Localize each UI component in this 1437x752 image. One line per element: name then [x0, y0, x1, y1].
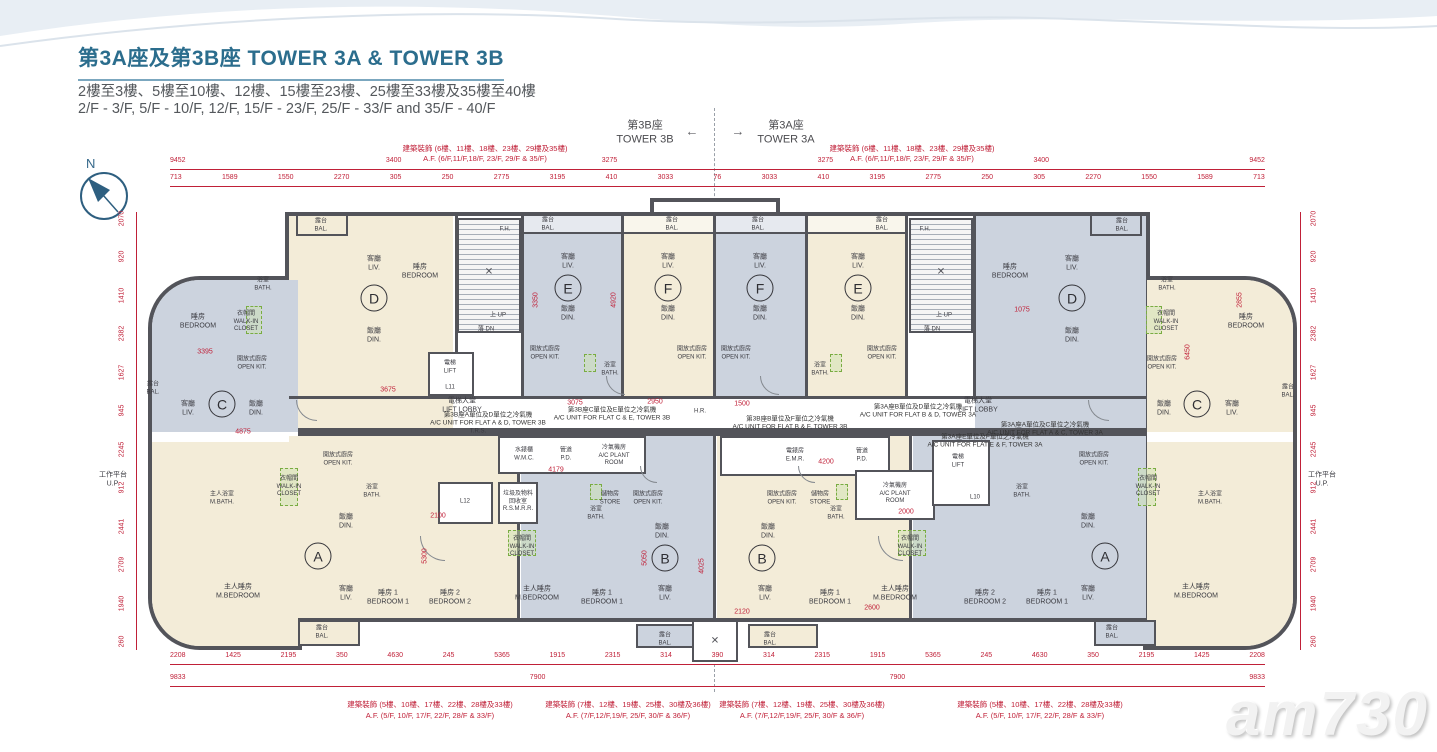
dim-inner: 6450	[1185, 344, 1192, 360]
room-balcony: 露台 BAL.	[665, 218, 678, 233]
unit-circle-a-left: A	[305, 543, 332, 570]
room-bath: 浴室 BATH.	[363, 485, 380, 500]
dimension-value: 912	[1311, 482, 1318, 494]
dimension-value: 9452	[170, 157, 186, 164]
unit-circle-c-left: C	[209, 391, 236, 418]
dimension-value: 1940	[118, 595, 125, 611]
hose-reel-label: H.R.	[694, 408, 706, 416]
room-balcony: 露台 BAL.	[875, 218, 888, 233]
ac-note-ac3a: 第3A座A單位及C單位之冷氣機 A/C UNIT FOR FLAT A & C,…	[987, 422, 1103, 439]
dim-chain-top-totals: 945234003275327534009452	[170, 157, 1265, 164]
dimension-value: 305	[1033, 174, 1045, 181]
wall	[973, 216, 976, 396]
unit-circle-f-left: F	[655, 275, 682, 302]
unit-circle-b-right: B	[749, 545, 776, 572]
room-open-kitchen: 開放式廚房 OPEN KIT.	[1147, 357, 1177, 372]
dimension-value: 2070	[118, 211, 125, 227]
dimension-value: 4630	[1032, 652, 1048, 659]
dimension-value: 260	[1311, 636, 1318, 648]
room-living: 客廳 LIV.	[753, 253, 767, 271]
dimension-value: 3400	[386, 157, 402, 164]
room-master-bedroom: 主人睡房 M.BEDROOM	[1174, 583, 1218, 601]
ac-plant-label: 冷氣機房 A/C PLANT ROOM	[879, 483, 910, 506]
room-living: 客廳 LIV.	[339, 585, 353, 603]
balcony-e-left	[523, 216, 621, 234]
stair-cross-mark: ✕	[711, 636, 719, 647]
dim-line	[170, 169, 1265, 170]
dimension-value: 2382	[1310, 326, 1317, 342]
dimension-value: 260	[119, 636, 126, 648]
room-walkin: 衣帽間 WALK-IN CLOSET	[234, 311, 259, 334]
room-walkin: 衣帽間 WALK-IN CLOSET	[1136, 476, 1161, 499]
dim-chain-bottom-totals: 9833790079009833	[170, 674, 1265, 681]
room-bedroom: 睡房 BEDROOM	[992, 263, 1028, 281]
ac-note-bf3b: 第3B座B單位及F單位之冷氣機 A/C UNIT FOR FLAT B & F,…	[733, 416, 848, 433]
dimension-value: 1589	[222, 174, 238, 181]
dimension-value: 76	[714, 174, 722, 181]
dim-chain-right: 2070920141023821627945224591224412709194…	[1306, 215, 1322, 645]
subtitle-english: 2/F - 3/F, 5/F - 10/F, 12/F, 15/F - 23/F…	[78, 101, 495, 117]
room-dining: 飯廳 DIN.	[1065, 327, 1079, 345]
closet-highlight	[830, 354, 842, 372]
dimension-value: 2441	[118, 518, 125, 534]
room-balcony: 露台 BAL.	[1105, 626, 1118, 641]
dimension-value: 314	[763, 652, 775, 659]
dimension-value: 945	[119, 405, 126, 417]
ac-note-bd3a: 第3A座B單位及D單位之冷氣機 A/C UNIT FOR FLAT B & D,…	[860, 404, 976, 421]
lift-label: 電梯 LIFT	[444, 361, 456, 376]
room-open-kitchen: 開放式廚房 OPEN KIT.	[721, 347, 751, 362]
pipe-duct-label: 管道 P.D.	[856, 449, 868, 464]
pipe-duct-label: 管道 P.D.	[560, 448, 572, 463]
dimension-value: 2245	[1310, 441, 1317, 457]
room-living: 客廳 LIV.	[1065, 255, 1079, 273]
dimension-value: 1915	[550, 652, 566, 659]
dimension-value: 1425	[1194, 652, 1210, 659]
dimension-value: 2382	[118, 326, 125, 342]
balcony-a-left	[298, 620, 360, 646]
dim-inner: 4200	[818, 459, 834, 466]
room-dining: 飯廳 DIN.	[851, 305, 865, 323]
dimension-value: 920	[119, 251, 126, 263]
room-living: 客廳 LIV.	[561, 253, 575, 271]
arrow-left-icon: ←	[686, 124, 699, 139]
lift-number-l10: L10	[970, 494, 980, 502]
dimension-value: 2775	[925, 174, 941, 181]
dim-chain-bottom-detail: 2208142521953504630245536519152315314390…	[170, 652, 1265, 659]
dimension-value: 9833	[170, 674, 186, 681]
dimension-value: 3275	[818, 157, 834, 164]
stair-up-label: 上 UP	[936, 312, 952, 320]
dimension-value: 2208	[170, 652, 186, 659]
room-walkin: 衣帽間 WALK-IN CLOSET	[898, 536, 923, 559]
room-balcony: 露台 BAL.	[315, 626, 328, 641]
wall	[521, 216, 524, 396]
am730-watermark: am730	[1226, 679, 1429, 750]
room-bedroom1: 睡房 1 BEDROOM 1	[809, 589, 851, 607]
right-wing-mbedroom-area	[1147, 442, 1293, 646]
unit-circle-b-left: B	[652, 545, 679, 572]
lift-number-l11: L11	[445, 384, 455, 392]
dim-line	[170, 686, 1265, 687]
stair-cross-right: ✕	[937, 267, 945, 278]
dim-inner: 2600	[864, 605, 880, 612]
dim-chain-left: 2070920141023821627945224591224412709194…	[114, 215, 130, 645]
dim-inner: 2000	[898, 509, 914, 516]
room-living: 客廳 LIV.	[181, 400, 195, 418]
dimension-value: 1410	[118, 288, 125, 304]
dimension-value: 245	[443, 652, 455, 659]
dimension-value: 1940	[1310, 595, 1317, 611]
af-note-bottom-2: 建築裝飾 (7樓、12樓、19樓、25樓、30樓及36樓) A.F. (7/F,…	[545, 700, 710, 721]
dimension-value: 5365	[494, 652, 510, 659]
room-balcony: 露台 BAL.	[1281, 385, 1294, 400]
balcony-a-right	[1094, 620, 1156, 646]
dimension-value: 920	[1311, 251, 1318, 263]
dimension-value: 2245	[118, 441, 125, 457]
room-balcony: 露台 BAL.	[541, 218, 554, 233]
room-master-bedroom: 主人睡房 M.BEDROOM	[515, 585, 559, 603]
dimension-value: 2208	[1249, 652, 1265, 659]
left-wing-mbedroom-area	[152, 442, 298, 646]
emr-label: 電錶房 E.M.R.	[786, 449, 804, 464]
room-living: 客廳 LIV.	[367, 255, 381, 273]
dimension-value: 1410	[1310, 288, 1317, 304]
dimension-value: 2775	[494, 174, 510, 181]
dim-inner: 4025	[699, 558, 706, 574]
room-bedroom2: 睡房 2 BEDROOM 2	[964, 589, 1006, 607]
room-master-bath: 主人浴室 M.BATH.	[1198, 492, 1222, 507]
fire-hydrant-label: F.H.	[920, 226, 931, 234]
room-bedroom1: 睡房 1 BEDROOM 1	[1026, 589, 1068, 607]
room-master-bath: 主人浴室 M.BATH.	[210, 492, 234, 507]
dimension-value: 250	[442, 174, 454, 181]
unit-circle-e-left: E	[555, 275, 582, 302]
dimension-value: 3195	[550, 174, 566, 181]
dim-inner: 5050	[642, 550, 649, 566]
room-bath: 浴室 BATH.	[254, 278, 271, 293]
room-dining: 飯廳 DIN.	[761, 523, 775, 541]
dimension-value: 5365	[925, 652, 941, 659]
room-master-bedroom: 主人睡房 M.BEDROOM	[216, 583, 260, 601]
room-living: 客廳 LIV.	[658, 585, 672, 603]
dim-inner: 4920	[611, 292, 618, 308]
dimension-value: 3275	[602, 157, 618, 164]
ac-note-ad3b: 第3B座A單位及D單位之冷氣機 A/C UNIT FOR FLAT A & D,…	[430, 412, 546, 429]
dim-inner: 2120	[734, 609, 750, 616]
wall	[621, 216, 624, 396]
ac-plant-label: 冷氣機房 A/C PLANT ROOM	[598, 445, 629, 468]
room-living: 客廳 LIV.	[1081, 585, 1095, 603]
dimension-value: 2270	[334, 174, 350, 181]
room-bedroom: 睡房 BEDROOM	[1228, 313, 1264, 331]
dimension-value: 2441	[1310, 518, 1317, 534]
dimension-value: 7900	[890, 674, 906, 681]
dim-line	[136, 212, 137, 650]
af-note-bottom-3: 建築裝飾 (7樓、12樓、19樓、25樓、30樓及36樓) A.F. (7/F,…	[719, 700, 884, 721]
dim-line	[170, 186, 1265, 187]
wall	[805, 216, 808, 396]
balcony-e-right	[807, 216, 905, 234]
dimension-value: 390	[712, 652, 724, 659]
room-bath: 浴室 BATH.	[811, 363, 828, 378]
dimension-value: 7900	[530, 674, 546, 681]
room-open-kitchen: 開放式廚房 OPEN KIT.	[1079, 453, 1109, 468]
dim-inner: 2100	[430, 513, 446, 520]
room-balcony: 露台 BAL.	[763, 633, 776, 648]
room-dining: 飯廳 DIN.	[1081, 513, 1095, 531]
room-walkin: 衣帽間 WALK-IN CLOSET	[1154, 311, 1179, 334]
room-walkin: 衣帽間 WALK-IN CLOSET	[510, 536, 535, 559]
stair-down-label: 落 DN	[478, 326, 494, 334]
arrow-right-icon: →	[732, 124, 745, 139]
dimension-value: 410	[606, 174, 618, 181]
room-bath: 浴室 BATH.	[1158, 278, 1175, 293]
room-living: 客廳 LIV.	[851, 253, 865, 271]
dim-inner: 2855	[1237, 292, 1244, 308]
dim-inner: 3350	[533, 292, 540, 308]
unit-circle-f-right: F	[747, 275, 774, 302]
stair-down-label: 落 DN	[924, 326, 940, 334]
dimension-value: 3400	[1034, 157, 1050, 164]
room-bedroom1: 睡房 1 BEDROOM 1	[581, 589, 623, 607]
ac-note-ce3b: 第3B座C單位及E單位之冷氣機 A/C UNIT FOR FLAT C & E,…	[554, 407, 670, 424]
dim-line	[170, 664, 1265, 665]
dim-chain-top-detail: 7131589155022703052502775319541030337630…	[170, 174, 1265, 181]
water-meter-label: 水錶櫃 W.M.C.	[514, 448, 534, 463]
tower-3a-label: 第3A座 TOWER 3A	[757, 119, 814, 147]
room-dining: 飯廳 DIN.	[561, 305, 575, 323]
dim-inner: 3395	[197, 349, 213, 356]
dim-inner: 2950	[647, 399, 663, 406]
dimension-value: 1550	[1141, 174, 1157, 181]
dimension-value: 713	[170, 174, 182, 181]
room-living: 客廳 LIV.	[758, 585, 772, 603]
dimension-value: 2709	[118, 557, 125, 573]
room-balcony: 露台 BAL.	[658, 633, 671, 648]
room-open-kitchen: 開放式廚房 OPEN KIT.	[677, 347, 707, 362]
dimension-value: 3033	[762, 174, 778, 181]
room-dining: 飯廳 DIN.	[661, 305, 675, 323]
room-dining: 飯廳 DIN.	[339, 513, 353, 531]
af-note-bottom-4: 建築裝飾 (5樓、10樓、17樓、22樓、28樓及33樓) A.F. (5/F,…	[957, 700, 1122, 721]
dimension-value: 350	[336, 652, 348, 659]
dimension-value: 1550	[278, 174, 294, 181]
lift-number-l12: L12	[460, 498, 470, 506]
room-bedroom1: 睡房 1 BEDROOM 1	[367, 589, 409, 607]
dim-inner: 3675	[380, 387, 396, 394]
dimension-value: 2709	[1310, 557, 1317, 573]
unit-circle-a-right: A	[1092, 543, 1119, 570]
room-bedroom2: 睡房 2 BEDROOM 2	[429, 589, 471, 607]
room-dining: 飯廳 DIN.	[1157, 400, 1171, 418]
room-open-kitchen: 開放式廚房 OPEN KIT.	[867, 347, 897, 362]
room-open-kitchen: 開放式廚房 OPEN KIT.	[530, 347, 560, 362]
room-living: 客廳 LIV.	[1225, 400, 1239, 418]
dimension-value: 2070	[1310, 211, 1317, 227]
unit-circle-d-left: D	[361, 285, 388, 312]
unit-circle-e-right: E	[845, 275, 872, 302]
room-dining: 飯廳 DIN.	[249, 400, 263, 418]
room-open-kitchen: 開放式廚房 OPEN KIT.	[633, 492, 663, 507]
dimension-value: 3033	[658, 174, 674, 181]
room-dining: 飯廳 DIN.	[655, 523, 669, 541]
dim-line	[1300, 212, 1301, 650]
stair-up-label: 上 UP	[490, 312, 506, 320]
room-bath: 浴室 BATH.	[1013, 485, 1030, 500]
room-dining: 飯廳 DIN.	[753, 305, 767, 323]
dimension-value: 2315	[605, 652, 621, 659]
dimension-value: 1425	[225, 652, 241, 659]
room-bedroom: 睡房 BEDROOM	[180, 313, 216, 331]
dimension-value: 2315	[814, 652, 830, 659]
room-living: 客廳 LIV.	[661, 253, 675, 271]
room-balcony: 露台 BAL.	[751, 218, 764, 233]
room-balcony: 露台 BAL.	[314, 219, 327, 234]
room-store: 儲物房 STORE	[600, 492, 621, 507]
dimension-value: 713	[1253, 174, 1265, 181]
dimension-value: 245	[980, 652, 992, 659]
unit-circle-d-right: D	[1059, 285, 1086, 312]
dimension-value: 2195	[1139, 652, 1155, 659]
dimension-value: 314	[660, 652, 672, 659]
room-open-kitchen: 開放式廚房 OPEN KIT.	[323, 453, 353, 468]
dimension-value: 9452	[1249, 157, 1265, 164]
dimension-value: 2195	[281, 652, 297, 659]
stair-cross-left: ✕	[485, 267, 493, 278]
closet-highlight	[584, 354, 596, 372]
dimension-value: 2270	[1085, 174, 1101, 181]
dimension-value: 350	[1087, 652, 1099, 659]
room-bedroom: 睡房 BEDROOM	[402, 263, 438, 281]
unit-circle-c-right: C	[1184, 391, 1211, 418]
dimension-value: 912	[119, 482, 126, 494]
dimension-value: 1915	[870, 652, 886, 659]
dimension-value: 1627	[118, 365, 125, 381]
dim-inner: 4875	[235, 429, 251, 436]
floor-plan-page: { "page": { "title": "第3A座及第3B座 TOWER 3A…	[0, 0, 1437, 752]
dimension-value: 250	[981, 174, 993, 181]
room-bath: 浴室 BATH.	[827, 507, 844, 522]
dimension-value: 410	[818, 174, 830, 181]
dim-inner: 4179	[548, 467, 564, 474]
room-walkin: 衣帽間 WALK-IN CLOSET	[277, 476, 302, 499]
tower-3b-label: 第3B座 TOWER 3B	[616, 119, 673, 147]
room-store: 儲物房 STORE	[810, 492, 831, 507]
balcony-b-right	[748, 624, 818, 648]
room-balcony: 露台 BAL.	[146, 382, 159, 397]
dimension-value: 4630	[387, 652, 403, 659]
trs-label: T.R.S.	[470, 428, 486, 436]
room-bath: 浴室 BATH.	[601, 363, 618, 378]
dimension-value: 1627	[1310, 365, 1317, 381]
lift-label: 電梯 LIFT	[952, 455, 964, 470]
dimension-value: 945	[1311, 405, 1318, 417]
room-master-bedroom: 主人睡房 M.BEDROOM	[873, 585, 917, 603]
room-open-kitchen: 開放式廚房 OPEN KIT.	[767, 492, 797, 507]
fire-hydrant-label: F.H.	[500, 226, 511, 234]
wall	[289, 396, 1146, 399]
dim-inner: 1075	[1014, 307, 1030, 314]
subtitle-chinese: 2樓至3樓、5樓至10樓、12樓、15樓至23樓、25樓至33樓及35樓至40樓	[78, 80, 536, 101]
room-bath: 浴室 BATH.	[587, 507, 604, 522]
wall	[713, 216, 716, 396]
page-title: 第3A座及第3B座 TOWER 3A & TOWER 3B	[78, 42, 504, 81]
dimension-value: 305	[390, 174, 402, 181]
wall	[905, 216, 908, 396]
refuse-room-label: 垃圾及物料 回收室 R.S.M.R.R.	[503, 491, 533, 514]
dim-inner: 5300	[422, 548, 429, 564]
af-note-bottom-1: 建築裝飾 (5樓、10樓、17樓、22樓、28樓及33樓) A.F. (5/F,…	[347, 700, 512, 721]
wall	[713, 436, 716, 618]
room-balcony: 露台 BAL.	[1115, 219, 1128, 234]
closet-highlight	[836, 484, 848, 500]
dimension-value: 3195	[870, 174, 886, 181]
dim-inner: 3075	[567, 400, 583, 407]
room-dining: 飯廳 DIN.	[367, 327, 381, 345]
dimension-value: 1589	[1197, 174, 1213, 181]
room-open-kitchen: 開放式廚房 OPEN KIT.	[237, 357, 267, 372]
dim-inner: 1500	[734, 401, 750, 408]
